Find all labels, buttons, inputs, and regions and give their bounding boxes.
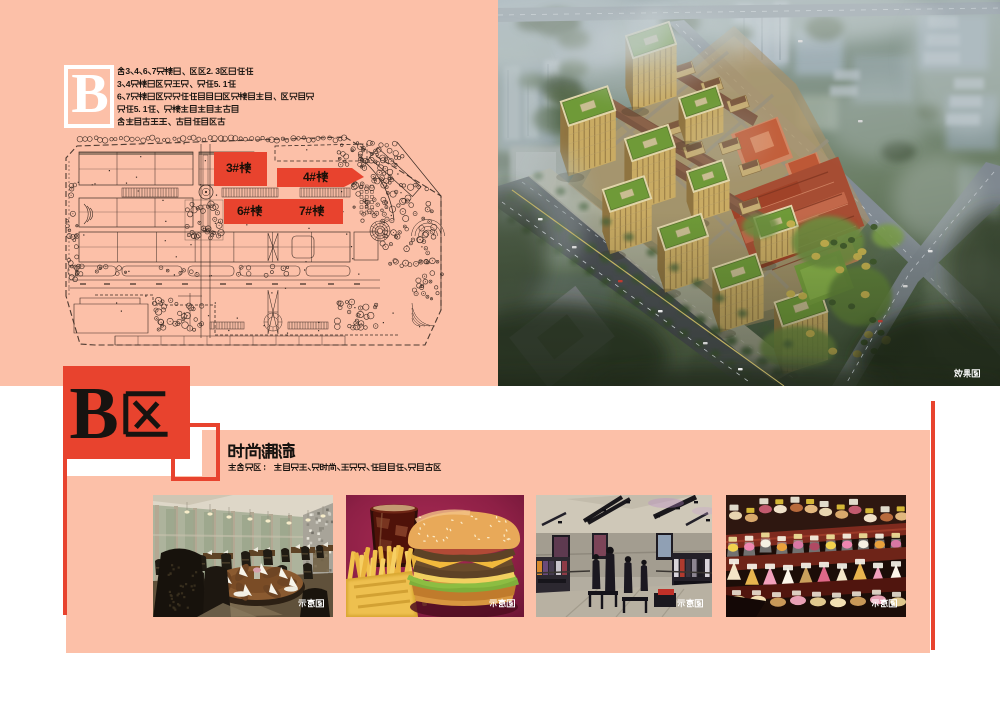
svg-text:.: .	[138, 104, 140, 114]
svg-text:6: 6	[143, 66, 148, 76]
svg-text:6: 6	[117, 91, 122, 101]
svg-text:3: 3	[215, 66, 220, 76]
svg-text:4: 4	[126, 79, 131, 89]
svg-text:#: #	[243, 204, 250, 218]
svg-text:.: .	[218, 79, 220, 89]
svg-text:7: 7	[152, 66, 157, 76]
svg-text:7: 7	[126, 91, 131, 101]
svg-text:3: 3	[117, 79, 122, 89]
svg-text:1: 1	[143, 104, 148, 114]
svg-text:4: 4	[134, 66, 139, 76]
svg-text:1: 1	[223, 79, 228, 89]
svg-text:#: #	[309, 170, 316, 184]
svg-text:#: #	[305, 204, 312, 218]
svg-text:#: #	[232, 161, 239, 175]
svg-text:.: .	[211, 66, 213, 76]
svg-text:3: 3	[125, 66, 130, 76]
